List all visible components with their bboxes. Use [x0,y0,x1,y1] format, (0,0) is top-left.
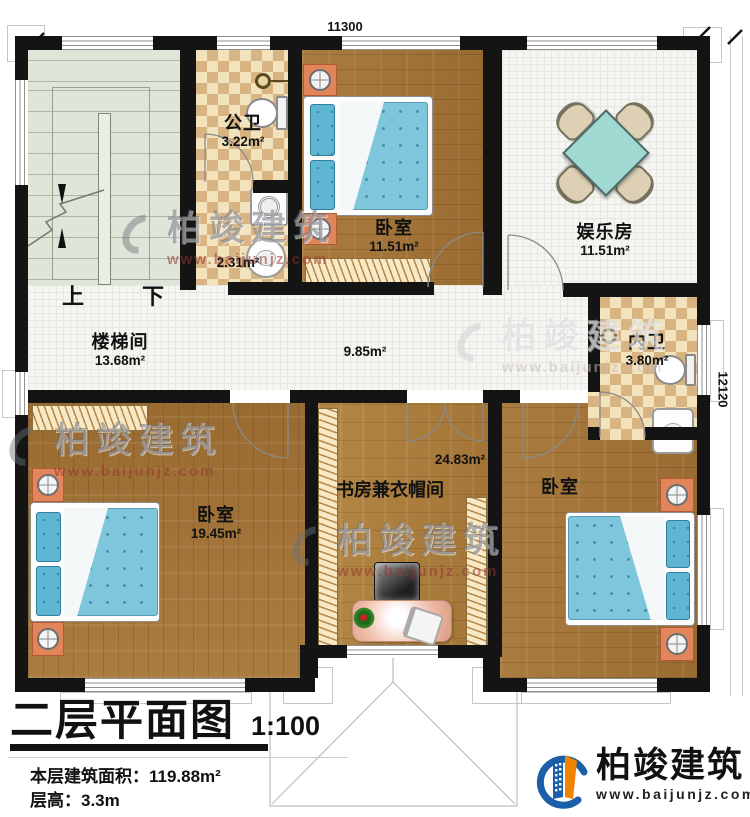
brand-logo-icon [536,748,590,810]
nightstand [32,468,64,502]
title-block: 二层平面图1:100 [10,697,430,746]
pillow [310,104,335,156]
floor-plan-canvas: 11300 12120 上 下 楼梯间 13.68m² 公卫 3.22m² 2.… [0,0,750,817]
window [697,515,710,625]
dimension-right: 12120 [715,354,730,424]
room-label-study-area: 24.83m² [418,452,502,468]
pillow [666,520,690,568]
room-label-bedroom-left: 卧室 19.45m² [170,505,262,541]
window-sill-right-bedroom [710,508,724,630]
room-label-bedroom-top: 卧室 11.51m² [348,218,440,254]
lamp-icon [666,633,688,655]
nightstand [303,213,337,245]
stair-down-label: 下 [138,284,168,309]
pillow [36,512,61,562]
stair-up-label: 上 [58,284,88,309]
wall-bedroom-entertainment [483,50,502,295]
room-label-hallway: 9.85m² [320,344,410,360]
room-name: 娱乐房 [555,222,655,243]
window-sill-bottom-right [503,692,671,704]
wall-hall-study [290,390,407,403]
pillow [666,572,690,620]
room-label-study: 书房兼衣帽间 [328,480,452,501]
plant-icon [352,606,376,630]
room-area: 3.22m² [198,134,288,150]
wardrobe [466,497,487,648]
stair-rail [98,113,111,285]
window [217,36,270,50]
room-label-laundry: 2.31m² [198,255,278,271]
window [347,645,438,658]
room-label-inner-bath: 内卫 3.80m² [612,332,682,368]
room-label-public-bath: 公卫 3.22m² [198,113,288,149]
wall-stairs-bath [180,50,196,290]
floor-height-value: 3.3m [81,791,120,810]
dimension-guide-line-right-inner [730,36,731,696]
room-area: 13.68m² [75,353,165,369]
room-label-stairwell: 楼梯间 13.68m² [75,332,165,368]
floor-area-value: 119.88m² [149,767,221,786]
floor-area-line: 本层建筑面积：119.88m² [30,762,221,787]
wall-hall-bedroomright [483,390,520,403]
room-label-bedroom-right: 卧室 [514,477,606,498]
window [527,678,657,692]
plan-scale: 1:100 [251,711,320,741]
room-area: 11.51m² [555,243,655,259]
tv-icon [374,562,420,602]
washing-machine-icon [250,188,288,226]
room-name: 楼梯间 [75,332,165,353]
window-sill-left [2,370,16,418]
plan-title: 二层平面图 [10,697,235,745]
nightstand [32,622,64,656]
room-name: 公卫 [198,113,288,134]
room-label-entertainment: 娱乐房 11.51m² [555,222,655,258]
wall-hall-bedroomleft [15,390,230,403]
wall-entertainment-hall [563,283,697,297]
brand-logo: 柏竣建筑 www.baijunjz.com [536,748,750,810]
room-name: 内卫 [612,332,682,353]
window [697,325,710,395]
shower-head-icon [255,73,271,89]
shower-arm [270,80,288,82]
pillow [36,566,61,616]
dimension-top: 11300 [310,20,380,35]
lamp-icon [309,218,331,240]
floor-height-label: 层高： [30,791,81,810]
window [527,36,657,50]
floor-height-line: 层高：3.3m [30,786,120,811]
nightstand [660,478,694,512]
nightstand [660,627,694,661]
wardrobe [32,405,148,431]
wall-innerbath-left [588,297,600,392]
window [342,36,460,50]
wardrobe [318,408,338,648]
wall-bath-divider [253,180,302,193]
lamp-icon [37,474,59,496]
brand-url: www.baijunjz.com [596,786,750,802]
wall-innerbath-bottom [645,427,697,440]
dimension-guide-line-right-outer [742,36,743,696]
floor-area-label: 本层建筑面积： [30,767,149,786]
room-name: 卧室 [170,505,262,526]
lamp-icon [309,69,331,91]
wall-bath-bedroom [288,50,302,295]
brand-text: 柏竣建筑 www.baijunjz.com [596,748,750,802]
washer-drum [258,196,280,218]
room-area: 11.51m² [348,239,440,255]
window [62,36,153,50]
window [15,80,28,185]
room-area: 19.45m² [170,526,262,542]
nightstand [303,64,337,96]
wall-bedroomleft-study [305,403,318,678]
wall-bedroomtop-hall [302,282,434,295]
room-area: 3.80m² [612,353,682,369]
brand-name: 柏竣建筑 [596,748,750,783]
wall-innerbath-corner [588,427,600,440]
title-thin-rule [8,757,348,758]
pillow [310,160,335,210]
window [15,372,28,415]
room-name: 卧室 [348,218,440,239]
toilet-tank [685,354,696,386]
wall-laundry-hall [228,282,302,295]
wall-study-bedroomright [488,403,502,657]
title-underline [10,744,268,751]
lamp-icon [666,484,688,506]
window [85,678,245,692]
wardrobe [305,258,431,285]
lamp-icon [37,628,59,650]
